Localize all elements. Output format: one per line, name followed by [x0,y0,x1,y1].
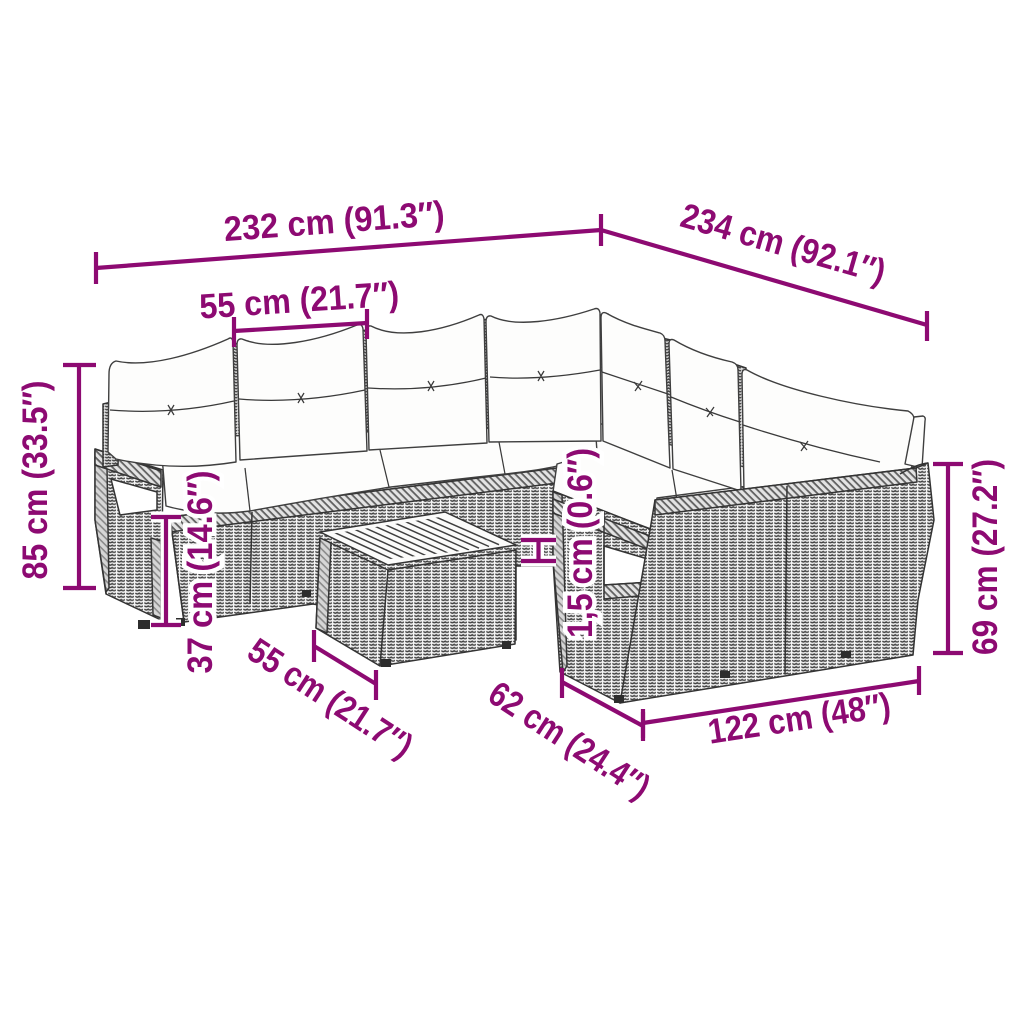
svg-text:1,5 cm (0.6″): 1,5 cm (0.6″) [561,448,600,638]
svg-text:85 cm (33.5″): 85 cm (33.5″) [16,381,55,580]
svg-text:37 cm (14.6″): 37 cm (14.6″) [181,471,220,674]
svg-text:69 cm (27.2″): 69 cm (27.2″) [966,459,1005,655]
